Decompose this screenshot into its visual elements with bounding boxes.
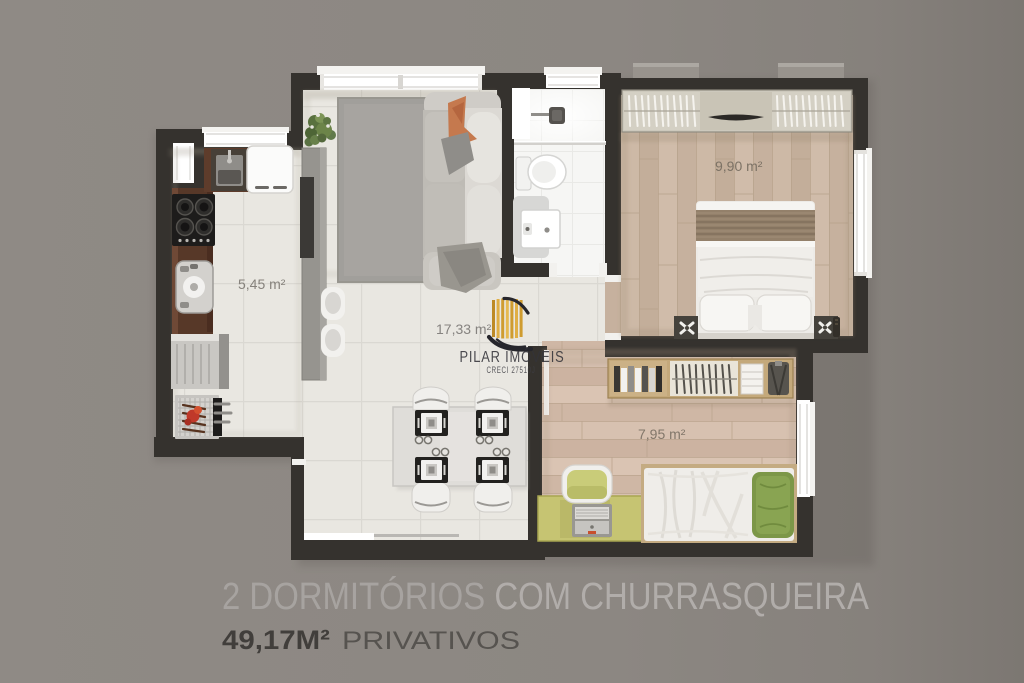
svg-text:17,33 m²: 17,33 m²: [436, 321, 492, 337]
svg-text:5,45 m²: 5,45 m²: [238, 276, 286, 292]
svg-text:PILAR IMÓVEIS: PILAR IMÓVEIS: [460, 347, 565, 366]
svg-text:7,95 m²: 7,95 m²: [638, 426, 686, 442]
svg-text:CRECI 27510J: CRECI 27510J: [487, 365, 536, 376]
svg-text:49,17M²: 49,17M²: [222, 625, 330, 655]
svg-text:PRIVATIVOS: PRIVATIVOS: [342, 627, 520, 655]
svg-text:2 DORMITÓRIOS COM CHURRASQUEIR: 2 DORMITÓRIOS COM CHURRASQUEIRA: [222, 575, 870, 618]
svg-text:9,90 m²: 9,90 m²: [715, 158, 763, 174]
